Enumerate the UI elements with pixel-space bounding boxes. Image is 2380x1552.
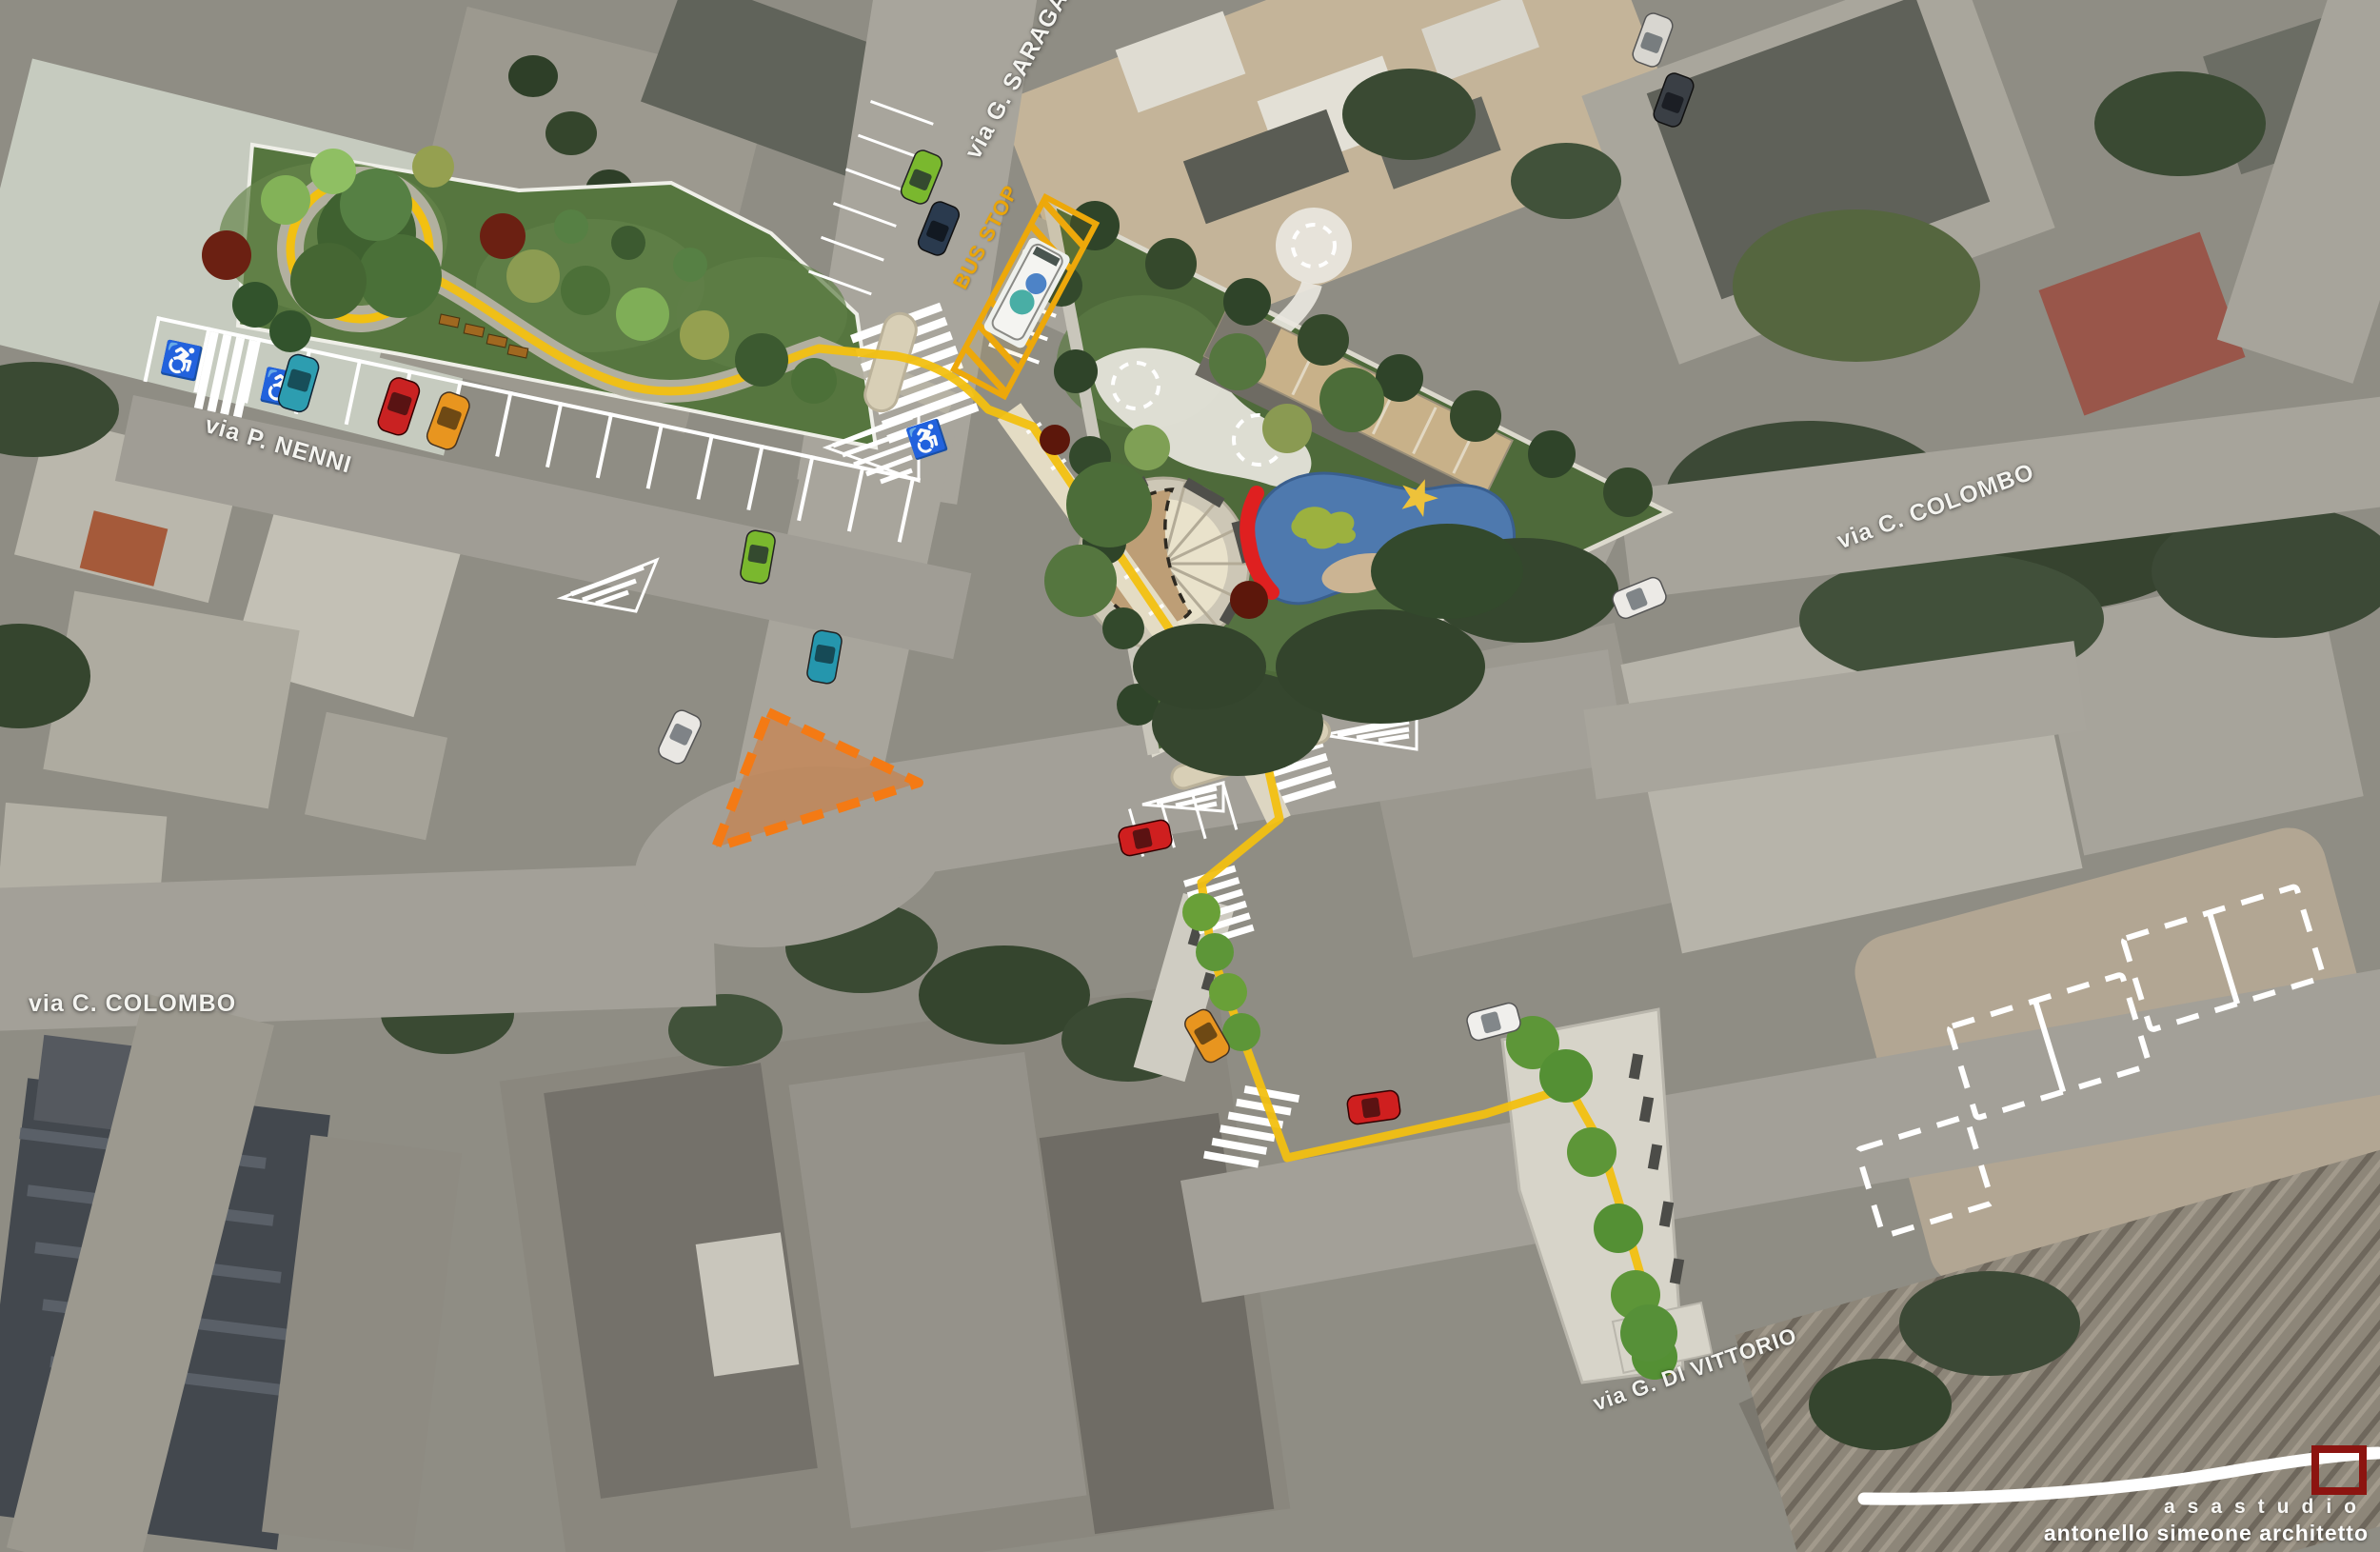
masterplan-aerial-view: ♿ ♿ ♿ bbox=[0, 0, 2380, 1552]
logo-studio-name: asastudio bbox=[2044, 1496, 2369, 1519]
studio-logo: asastudio antonello simeone architetto bbox=[2044, 1496, 2369, 1546]
street-label-colombo-left: via C. COLOMBO bbox=[29, 990, 236, 1018]
logo-architect-name: antonello simeone architetto bbox=[2044, 1521, 2369, 1546]
site-plan-canvas: ♿ ♿ ♿ bbox=[0, 0, 2380, 1552]
logo-square-icon bbox=[2311, 1445, 2367, 1495]
